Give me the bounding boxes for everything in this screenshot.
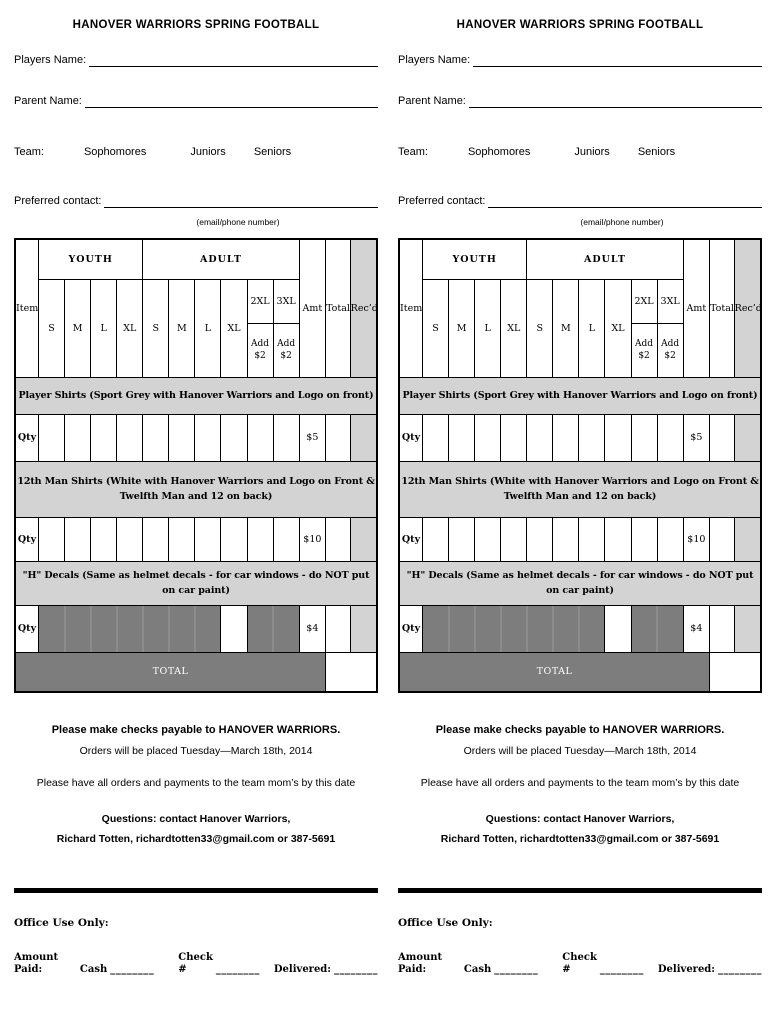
contact-hint: (email/phone number) xyxy=(398,217,762,227)
form-copy-right: HANOVER WARRIORS SPRING FOOTBALL Players… xyxy=(398,14,762,976)
size-header-2xl: 2XL xyxy=(247,279,273,323)
cash-label: Cash xyxy=(80,964,107,976)
qty-row-12th-man-shirts: Qty $10 xyxy=(15,517,377,561)
team-option-sophomores[interactable]: Sophomores xyxy=(84,146,146,158)
price-player-shirts: $5 xyxy=(299,414,325,461)
blocked-size-cells xyxy=(39,605,221,652)
youth-group-header: YOUTH xyxy=(39,239,143,279)
check-number-label: Check # xyxy=(178,952,213,976)
amount-paid-label: Amount Paid: xyxy=(398,952,452,976)
qty-cell[interactable] xyxy=(657,517,683,561)
players-name-label: Players Name: xyxy=(398,54,470,67)
separator-rule xyxy=(398,888,762,893)
team-option-sophomores[interactable]: Sophomores xyxy=(468,146,530,158)
qty-label: Qty xyxy=(399,605,423,652)
grand-total-label: TOTAL xyxy=(399,652,710,692)
check-number-blank[interactable]: ________ xyxy=(600,964,644,976)
note-checks-payable: Please make checks payable to HANOVER WA… xyxy=(14,724,378,736)
size-header-adult-s: S xyxy=(143,279,169,377)
size-header-adult-m: M xyxy=(169,279,195,377)
qty-cell[interactable] xyxy=(169,517,195,561)
total-cell[interactable] xyxy=(710,414,735,461)
size-header-youth-m: M xyxy=(449,279,475,377)
preferred-contact-label: Preferred contact: xyxy=(398,195,485,208)
delivered-blank[interactable]: ________ xyxy=(334,964,378,976)
qty-row-h-decals: Qty $4 xyxy=(399,605,761,652)
3xl-add-fee: Add $2 xyxy=(657,323,683,377)
note-questions: Questions: contact Hanover Warriors, xyxy=(398,813,762,825)
qty-label: Qty xyxy=(399,517,423,561)
decal-qty-cell[interactable] xyxy=(605,605,631,652)
form-title: HANOVER WARRIORS SPRING FOOTBALL xyxy=(14,19,378,31)
price-12th-man-shirts: $10 xyxy=(299,517,325,561)
team-option-juniors[interactable]: Juniors xyxy=(574,146,609,158)
note-questions: Questions: contact Hanover Warriors, xyxy=(14,813,378,825)
office-row: Amount Paid: Cash ________ Check # _____… xyxy=(14,952,378,976)
qty-cell[interactable] xyxy=(657,414,683,461)
item-description-h-decals: "H" Decals (Same as helmet decals - for … xyxy=(15,561,377,605)
qty-label: Qty xyxy=(15,414,39,461)
2xl-add-fee: Add $2 xyxy=(247,323,273,377)
qty-cell[interactable] xyxy=(221,414,247,461)
price-h-decals: $4 xyxy=(299,605,325,652)
qty-cell[interactable] xyxy=(501,517,527,561)
qty-cell[interactable] xyxy=(501,414,527,461)
table-group-header-row: Item YOUTH ADULT Amt Total Rec’d xyxy=(399,239,761,279)
grand-total-label: TOTAL xyxy=(15,652,326,692)
total-header: Total xyxy=(710,239,735,377)
grand-total-row: TOTAL xyxy=(399,652,761,692)
check-number-label: Check # xyxy=(562,952,597,976)
preferred-contact-row: Preferred contact: xyxy=(398,195,762,208)
contact-hint: (email/phone number) xyxy=(14,217,378,227)
recd-cell[interactable] xyxy=(734,517,761,561)
form-title: HANOVER WARRIORS SPRING FOOTBALL xyxy=(398,19,762,31)
delivered-label: Delivered: xyxy=(658,964,715,976)
cash-blank[interactable]: ________ xyxy=(110,964,154,976)
team-label: Team: xyxy=(398,146,428,158)
qty-cell[interactable] xyxy=(527,414,553,461)
note-contact-info: Richard Totten, richardtotten33@gmail.co… xyxy=(398,833,762,845)
qty-label: Qty xyxy=(399,414,423,461)
recd-cell[interactable] xyxy=(734,414,761,461)
size-header-3xl: 3XL xyxy=(657,279,683,323)
cash-label: Cash xyxy=(464,964,491,976)
qty-row-12th-man-shirts: Qty $10 xyxy=(399,517,761,561)
qty-cell[interactable] xyxy=(527,517,553,561)
players-name-blank[interactable] xyxy=(89,54,378,67)
price-player-shirts: $5 xyxy=(683,414,709,461)
qty-cell[interactable] xyxy=(39,414,65,461)
qty-cell[interactable] xyxy=(247,517,273,561)
size-header-youth-m: M xyxy=(65,279,91,377)
item-header: Item xyxy=(15,239,39,377)
qty-cell[interactable] xyxy=(449,414,475,461)
item-description-12th-man-shirts: 12th Man Shirts (White with Hanover Warr… xyxy=(15,461,377,517)
total-header: Total xyxy=(326,239,351,377)
size-header-youth-l: L xyxy=(91,279,117,377)
item-band-row-h-decals: "H" Decals (Same as helmet decals - for … xyxy=(399,561,761,605)
item-band-row-player-shirts: Player Shirts (Sport Grey with Hanover W… xyxy=(15,377,377,414)
size-header-youth-l: L xyxy=(475,279,501,377)
parent-name-row: Parent Name: xyxy=(14,95,378,108)
size-header-2xl: 2XL xyxy=(631,279,657,323)
qty-cell[interactable] xyxy=(631,414,657,461)
price-12th-man-shirts: $10 xyxy=(683,517,709,561)
qty-cell[interactable] xyxy=(553,414,579,461)
item-band-row-player-shirts: Player Shirts (Sport Grey with Hanover W… xyxy=(399,377,761,414)
qty-cell[interactable] xyxy=(273,414,299,461)
team-option-juniors[interactable]: Juniors xyxy=(190,146,225,158)
sheet: HANOVER WARRIORS SPRING FOOTBALL Players… xyxy=(0,0,770,976)
size-header-youth-s: S xyxy=(39,279,65,377)
blocked-size-cells xyxy=(423,605,605,652)
qty-cell[interactable] xyxy=(91,414,117,461)
item-header: Item xyxy=(399,239,423,377)
order-table: Item YOUTH ADULT Amt Total Rec’d S M L X… xyxy=(14,238,378,693)
total-cell[interactable] xyxy=(326,605,351,652)
2xl-add-fee: Add $2 xyxy=(631,323,657,377)
item-description-h-decals: "H" Decals (Same as helmet decals - for … xyxy=(399,561,761,605)
amount-paid-label: Amount Paid: xyxy=(14,952,68,976)
item-description-player-shirts: Player Shirts (Sport Grey with Hanover W… xyxy=(15,377,377,414)
size-header-youth-xl: XL xyxy=(501,279,527,377)
size-header-youth-xl: XL xyxy=(117,279,143,377)
qty-cell[interactable] xyxy=(117,517,143,561)
order-table: Item YOUTH ADULT Amt Total Rec’d S M L X… xyxy=(398,238,762,693)
office-row: Amount Paid: Cash ________ Check # _____… xyxy=(398,952,762,976)
team-option-seniors[interactable]: Seniors xyxy=(638,146,675,158)
order-form: HANOVER WARRIORS SPRING FOOTBALL Players… xyxy=(398,19,762,976)
qty-cell[interactable] xyxy=(169,414,195,461)
recd-cell[interactable] xyxy=(350,517,377,561)
qty-cell[interactable] xyxy=(195,414,221,461)
qty-cell[interactable] xyxy=(117,414,143,461)
qty-cell[interactable] xyxy=(423,517,449,561)
size-header-adult-l: L xyxy=(579,279,605,377)
office-use-label: Office Use Only: xyxy=(14,917,378,929)
parent-name-label: Parent Name: xyxy=(398,95,466,108)
players-name-row: Players Name: xyxy=(14,54,378,67)
qty-cell[interactable] xyxy=(195,517,221,561)
size-header-adult-m: M xyxy=(553,279,579,377)
players-name-blank[interactable] xyxy=(473,54,762,67)
qty-cell[interactable] xyxy=(475,517,501,561)
grand-total-cell[interactable] xyxy=(710,652,761,692)
qty-cell[interactable] xyxy=(423,414,449,461)
3xl-add-fee: Add $2 xyxy=(273,323,299,377)
recd-cell[interactable] xyxy=(734,605,761,652)
size-header-youth-s: S xyxy=(423,279,449,377)
players-name-label: Players Name: xyxy=(14,54,86,67)
note-checks-payable: Please make checks payable to HANOVER WA… xyxy=(398,724,762,736)
size-header-adult-l: L xyxy=(195,279,221,377)
recd-cell[interactable] xyxy=(350,605,377,652)
parent-name-blank[interactable] xyxy=(85,95,378,108)
qty-cell[interactable] xyxy=(39,517,65,561)
team-label: Team: xyxy=(14,146,44,158)
qty-cell[interactable] xyxy=(631,517,657,561)
total-cell[interactable] xyxy=(710,605,735,652)
team-option-seniors[interactable]: Seniors xyxy=(254,146,291,158)
parent-name-blank[interactable] xyxy=(469,95,762,108)
qty-cell[interactable] xyxy=(247,414,273,461)
form-copy-left: HANOVER WARRIORS SPRING FOOTBALL Players… xyxy=(14,14,378,976)
item-band-row-12th-man-shirts: 12th Man Shirts (White with Hanover Warr… xyxy=(15,461,377,517)
item-band-row-12th-man-shirts: 12th Man Shirts (White with Hanover Warr… xyxy=(399,461,761,517)
grand-total-row: TOTAL xyxy=(15,652,377,692)
qty-cell[interactable] xyxy=(449,517,475,561)
preferred-contact-blank[interactable] xyxy=(104,195,378,208)
parent-name-label: Parent Name: xyxy=(14,95,82,108)
parent-name-row: Parent Name: xyxy=(398,95,762,108)
qty-label: Qty xyxy=(15,605,39,652)
decal-qty-cell[interactable] xyxy=(221,605,247,652)
size-header-adult-s: S xyxy=(527,279,553,377)
blocked-size-cells xyxy=(247,605,299,652)
delivered-blank[interactable]: ________ xyxy=(718,964,762,976)
team-row: Team: Sophomores Juniors Seniors xyxy=(398,146,762,158)
note-order-date: Orders will be placed Tuesday—March 18th… xyxy=(14,745,378,757)
recd-header: Rec’d xyxy=(734,239,761,377)
item-band-row-h-decals: "H" Decals (Same as helmet decals - for … xyxy=(15,561,377,605)
qty-cell[interactable] xyxy=(605,517,631,561)
total-cell[interactable] xyxy=(326,414,351,461)
qty-cell[interactable] xyxy=(273,517,299,561)
recd-cell[interactable] xyxy=(350,414,377,461)
players-name-row: Players Name: xyxy=(398,54,762,67)
qty-label: Qty xyxy=(15,517,39,561)
preferred-contact-blank[interactable] xyxy=(488,195,762,208)
size-header-adult-xl: XL xyxy=(221,279,247,377)
item-description-12th-man-shirts: 12th Man Shirts (White with Hanover Warr… xyxy=(399,461,761,517)
qty-cell[interactable] xyxy=(475,414,501,461)
qty-cell[interactable] xyxy=(553,517,579,561)
qty-cell[interactable] xyxy=(579,517,605,561)
total-cell[interactable] xyxy=(710,517,735,561)
qty-cell[interactable] xyxy=(91,517,117,561)
blocked-size-cells xyxy=(631,605,683,652)
qty-cell[interactable] xyxy=(143,414,169,461)
note-order-date: Orders will be placed Tuesday—March 18th… xyxy=(398,745,762,757)
office-use-label: Office Use Only: xyxy=(398,917,762,929)
amt-header: Amt xyxy=(299,239,325,377)
qty-cell[interactable] xyxy=(65,414,91,461)
delivered-label: Delivered: xyxy=(274,964,331,976)
note-deadline: Please have all orders and payments to t… xyxy=(398,777,762,789)
order-form: HANOVER WARRIORS SPRING FOOTBALL Players… xyxy=(14,19,378,976)
cash-blank[interactable]: ________ xyxy=(494,964,538,976)
amt-header: Amt xyxy=(683,239,709,377)
total-cell[interactable] xyxy=(326,517,351,561)
qty-row-h-decals: Qty $4 xyxy=(15,605,377,652)
qty-cell[interactable] xyxy=(605,414,631,461)
separator-rule xyxy=(14,888,378,893)
qty-cell[interactable] xyxy=(65,517,91,561)
qty-cell[interactable] xyxy=(579,414,605,461)
item-description-player-shirts: Player Shirts (Sport Grey with Hanover W… xyxy=(399,377,761,414)
recd-header: Rec’d xyxy=(350,239,377,377)
preferred-contact-row: Preferred contact: xyxy=(14,195,378,208)
check-number-blank[interactable]: ________ xyxy=(216,964,260,976)
youth-group-header: YOUTH xyxy=(423,239,527,279)
size-header-3xl: 3XL xyxy=(273,279,299,323)
preferred-contact-label: Preferred contact: xyxy=(14,195,101,208)
qty-row-player-shirts: Qty $5 xyxy=(399,414,761,461)
team-row: Team: Sophomores Juniors Seniors xyxy=(14,146,378,158)
qty-row-player-shirts: Qty $5 xyxy=(15,414,377,461)
size-header-adult-xl: XL xyxy=(605,279,631,377)
note-deadline: Please have all orders and payments to t… xyxy=(14,777,378,789)
adult-group-header: ADULT xyxy=(143,239,299,279)
table-group-header-row: Item YOUTH ADULT Amt Total Rec’d xyxy=(15,239,377,279)
price-h-decals: $4 xyxy=(683,605,709,652)
grand-total-cell[interactable] xyxy=(326,652,377,692)
adult-group-header: ADULT xyxy=(527,239,683,279)
note-contact-info: Richard Totten, richardtotten33@gmail.co… xyxy=(14,833,378,845)
qty-cell[interactable] xyxy=(221,517,247,561)
qty-cell[interactable] xyxy=(143,517,169,561)
